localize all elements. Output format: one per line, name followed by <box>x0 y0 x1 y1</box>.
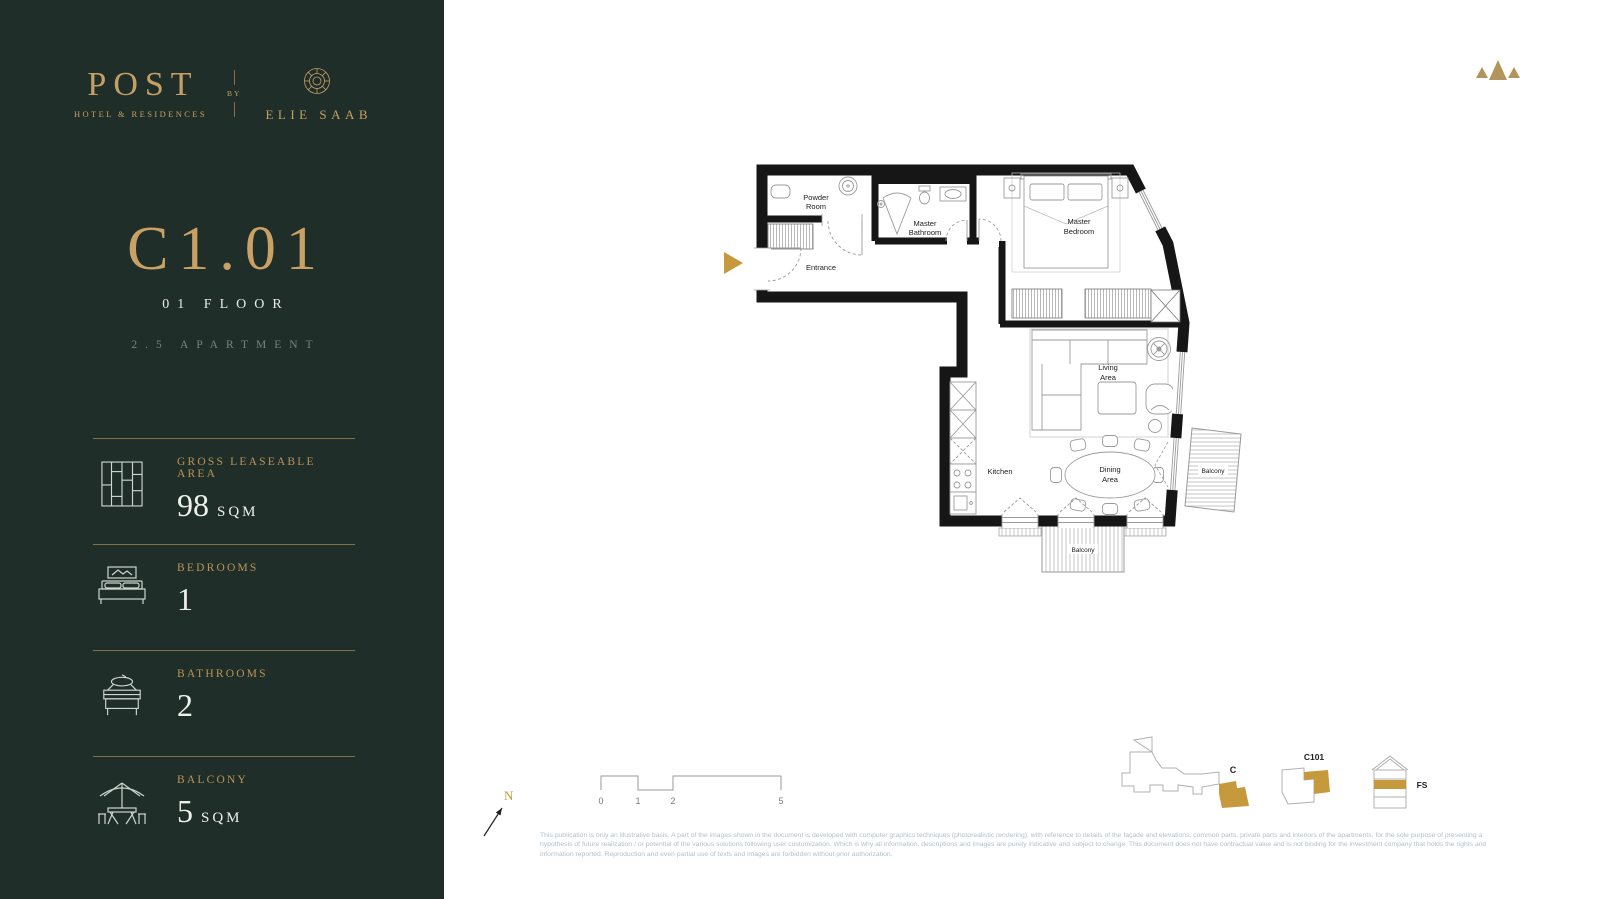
site-highlight <box>1219 781 1249 808</box>
kitchen-units <box>950 382 976 514</box>
label-entrance: Entrance <box>806 263 836 272</box>
stat-value-unit: SQM <box>201 810 243 826</box>
label-powder-room: Powder <box>803 193 829 202</box>
block-highlight <box>1304 770 1330 794</box>
north-label: N <box>504 788 514 803</box>
unit-code: C1.01 <box>0 214 444 285</box>
entrance-arrow-icon <box>724 252 743 274</box>
stat-bedrooms: BEDROOMS 1 <box>93 544 355 650</box>
bed-icon <box>93 566 151 608</box>
stat-value: 1 <box>177 583 259 615</box>
stat-value: 5SQM <box>177 795 248 827</box>
coffee-table <box>1098 382 1136 414</box>
stat-balcony: BALCONY 5SQM <box>93 756 355 862</box>
post-logo-name: POST <box>72 68 207 102</box>
unit-type: 2.5 APARTMENT <box>0 339 444 351</box>
juliet-rail-right <box>1124 528 1166 536</box>
label-master-bathroom: Master <box>914 219 937 228</box>
unit-floor: 01 FLOOR <box>0 297 444 313</box>
bathroom-lintel-wall <box>878 168 972 184</box>
main-panel: Powder Room Master Bathroom Master Bedro… <box>444 0 1600 899</box>
mountains-logo-icon <box>1472 54 1524 84</box>
svg-text:Bedroom: Bedroom <box>1064 227 1094 236</box>
site-label: C <box>1230 765 1237 775</box>
brand-by-label: BY <box>227 85 241 102</box>
umbrella-table-icon <box>93 778 151 826</box>
stat-value-number: 1 <box>177 581 193 617</box>
scale-tick-5: 5 <box>778 796 783 806</box>
sidebar: POST HOTEL & RESIDENCES BY ELIE SAAB <box>0 0 444 899</box>
stat-bathrooms: BATHROOMS 2 <box>93 650 355 756</box>
stat-label: GROSS LEASEABLE AREA <box>177 456 355 480</box>
scale-bar: 0 1 2 5 <box>596 770 796 810</box>
disclaimer-line: hypothesis of future realization / or po… <box>540 840 1522 849</box>
stat-body: BALCONY 5SQM <box>177 774 248 827</box>
scale-tick-1: 1 <box>635 796 640 806</box>
vanity-icon <box>93 672 151 718</box>
brand-divider: BY <box>227 70 241 117</box>
scale-tick-0: 0 <box>598 796 603 806</box>
label-kitchen: Kitchen <box>987 467 1012 476</box>
label-balcony-right: Balcony <box>1201 468 1225 475</box>
stat-body: GROSS LEASEABLE AREA 98SQM <box>177 456 355 521</box>
fan-coil-icon <box>1148 338 1171 361</box>
label-dining-area: Dining <box>1099 465 1120 474</box>
label-living-area: Living <box>1098 363 1118 372</box>
brand-lockup: POST HOTEL & RESIDENCES BY ELIE SAAB <box>0 64 444 123</box>
stat-body: BATHROOMS 2 <box>177 668 268 721</box>
block-keyplan: C101 <box>1274 750 1348 812</box>
stat-value-number: 98 <box>177 487 209 523</box>
svg-text:Room: Room <box>806 202 826 211</box>
label-master-bedroom: Master <box>1068 217 1091 226</box>
elie-saab-name: ELIE SAAB <box>261 107 372 123</box>
label-balcony-bottom: Balcony <box>1071 547 1095 554</box>
svg-text:Area: Area <box>1100 373 1117 382</box>
stat-value: 98SQM <box>177 489 355 521</box>
stat-body: BEDROOMS 1 <box>177 562 259 615</box>
floor-plan: Powder Room Master Bathroom Master Bedro… <box>700 140 1260 590</box>
svg-text:Area: Area <box>1102 475 1119 484</box>
post-logo-tagline: HOTEL & RESIDENCES <box>72 109 207 119</box>
block-label: C101 <box>1304 752 1325 762</box>
divider-line-bottom <box>234 102 235 117</box>
disclaimer-line: information reported. Reproduction and e… <box>540 850 1522 859</box>
stat-gross-leaseable-area: GROSS LEASEABLE AREA 98SQM <box>93 438 355 544</box>
divider-line-top <box>234 70 235 85</box>
north-arrow-head <box>496 808 502 816</box>
elevation-keyplan: FS <box>1360 748 1440 812</box>
parquet-icon <box>93 460 151 508</box>
elevation-highlight <box>1374 780 1406 789</box>
scale-tick-2: 2 <box>670 796 675 806</box>
site-outline <box>1122 737 1219 794</box>
elevation-label: FS <box>1417 780 1428 790</box>
svg-text:Bathroom: Bathroom <box>909 228 942 237</box>
disclaimer-line: This publication is only an illustrative… <box>540 831 1522 840</box>
disclaimer: This publication is only an illustrative… <box>540 831 1522 859</box>
elie-saab-logo: ELIE SAAB <box>261 64 372 123</box>
stat-label: BEDROOMS <box>177 562 259 574</box>
north-indicator: N <box>482 786 526 844</box>
stat-value-unit: SQM <box>217 504 259 520</box>
site-keyplan: C <box>1106 728 1276 813</box>
stat-value-number: 2 <box>177 687 193 723</box>
stats-list: GROSS LEASEABLE AREA 98SQM BEDROOMS 1 <box>93 438 355 862</box>
stat-value-number: 5 <box>177 793 193 829</box>
juliet-rail-left <box>999 528 1041 536</box>
post-logo: POST HOTEL & RESIDENCES <box>72 68 207 119</box>
elie-saab-medallion-icon <box>300 64 334 98</box>
stat-label: BATHROOMS <box>177 668 268 680</box>
bed <box>1012 173 1120 272</box>
stat-label: BALCONY <box>177 774 248 786</box>
stat-value: 2 <box>177 689 268 721</box>
